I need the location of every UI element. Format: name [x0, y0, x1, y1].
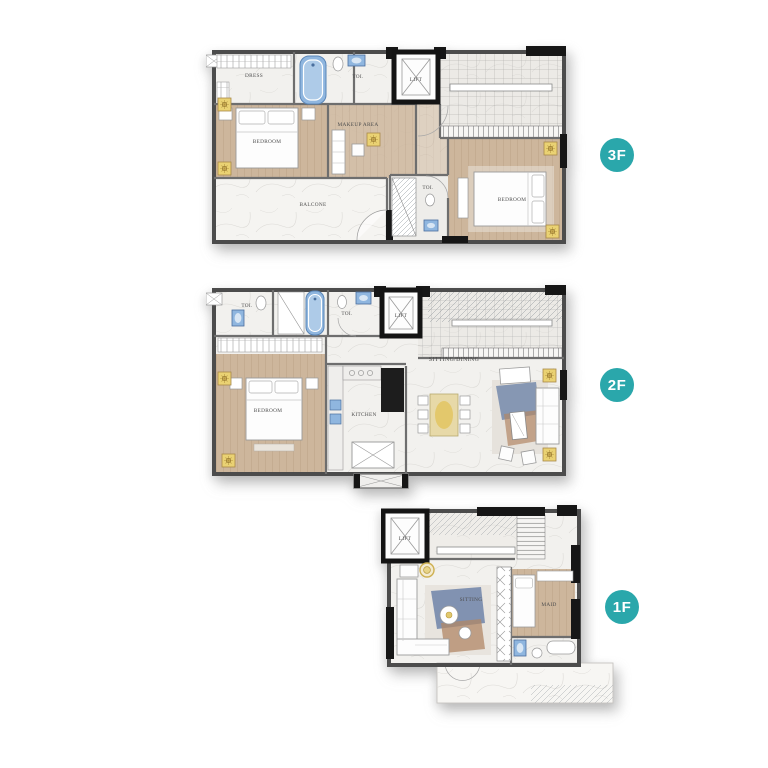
terrace-steps [531, 685, 613, 703]
nightstand [302, 108, 315, 120]
lift-2f: LIFT [382, 290, 420, 336]
plant-icon [218, 372, 231, 385]
room-label-sitting: SITTING [460, 597, 483, 603]
bathtub-icon [300, 56, 326, 104]
floor-plan-2f: TOI. TOI. LIFT [206, 282, 580, 496]
room-label-sitting-dining: SITTING/DINING [429, 357, 479, 363]
room-label-kitchen: KITCHEN [351, 412, 376, 418]
wardrobe [217, 55, 291, 68]
sink-icon [424, 220, 438, 231]
room-label-lift-3f: LIFT [410, 77, 423, 83]
sink-icon [232, 310, 244, 326]
side-table [459, 627, 471, 639]
gold-mirror-icon [420, 563, 434, 577]
toilet-icon [338, 296, 347, 309]
floor-badge-3f: 3F [600, 138, 634, 172]
kitchen-sink-icon [330, 400, 341, 410]
lift-3f: LIFT [394, 52, 438, 102]
room-label-bedroom-2f: BEDROOM [254, 408, 283, 414]
sink-icon [348, 55, 365, 66]
room-label-maid: MAID [541, 602, 556, 608]
plant-icon [544, 142, 557, 155]
bathroom-2f [278, 291, 324, 335]
stairwell-1f [429, 513, 545, 559]
floor-badge-1f: 1F [605, 590, 639, 624]
room-label-toi-left: TOI. [241, 303, 252, 309]
bed [236, 108, 298, 168]
lift-1f: LIFT [383, 511, 427, 561]
terrace-1f [437, 663, 613, 703]
coffee-table [510, 411, 528, 439]
sofa [536, 388, 559, 444]
stair-railing [452, 320, 552, 326]
stairs-upper [428, 292, 562, 322]
plant-icon [218, 98, 231, 111]
plant-icon [218, 162, 231, 175]
armchair [400, 565, 418, 577]
toilet-icon [426, 194, 435, 206]
toilet-icon [256, 296, 266, 310]
plant-icon [543, 369, 556, 382]
toilet-icon [532, 648, 542, 658]
floor-badge-3f-label: 3F [608, 147, 627, 164]
floor-plan-1f: LIFT SITTING MAID [381, 503, 631, 718]
service-balcony-2f [354, 474, 408, 488]
pouf [499, 446, 514, 461]
room-label-toi-top: TOI. [352, 74, 363, 80]
room-label-lift-1f: LIFT [399, 536, 412, 542]
floor-badge-1f-label: 1F [613, 599, 632, 616]
stairwell-skylight-3f [440, 52, 564, 138]
tv-console [500, 367, 531, 384]
toilet-icon [333, 57, 343, 71]
room-label-bedroom-left: BEDROOM [253, 139, 282, 145]
kitchen-counter [343, 366, 381, 380]
living-area [492, 367, 559, 465]
pouf [521, 450, 536, 465]
room-label-makeup-area: MAKEUP AREA [338, 122, 379, 128]
shelf [537, 571, 573, 581]
column-symbol [206, 293, 222, 305]
bathtub-icon [547, 641, 575, 654]
kitchen-sink-icon [330, 414, 341, 424]
stool [352, 144, 364, 156]
kitchen-island [352, 442, 394, 468]
sink-icon [514, 640, 526, 656]
room-label-bedroom-right: BEDROOM [498, 197, 527, 203]
bench [254, 444, 294, 451]
stairwell-2f [418, 290, 564, 358]
floor-badge-2f: 2F [600, 368, 634, 402]
fridge [381, 368, 404, 412]
room-label-lift-2f: LIFT [395, 313, 408, 319]
floor-badge-2f-label: 2F [608, 377, 627, 394]
nightstand [306, 378, 318, 389]
bench [458, 178, 468, 218]
room-label-toi-bottom: TOI. [422, 185, 433, 191]
room-label-toi-right: TOI. [341, 311, 352, 317]
stair-railing [450, 84, 552, 91]
plant-icon [543, 448, 556, 461]
plant-icon [222, 454, 235, 467]
wardrobe [218, 338, 322, 352]
room-label-dress: DRESS [245, 73, 263, 79]
room-label-balcone: BALCONE [299, 202, 326, 208]
plant-icon [546, 225, 559, 238]
nightstand [230, 378, 242, 389]
bed [513, 575, 535, 627]
sink-icon [356, 292, 371, 304]
plant-icon [367, 133, 380, 146]
dining-table [418, 394, 470, 436]
bathtub-icon [306, 291, 324, 335]
shelf-partition [497, 567, 511, 661]
stair-railing [437, 547, 515, 554]
floor-plan-3f: DRESS TOI. LIFT BEDROOM [206, 42, 584, 270]
